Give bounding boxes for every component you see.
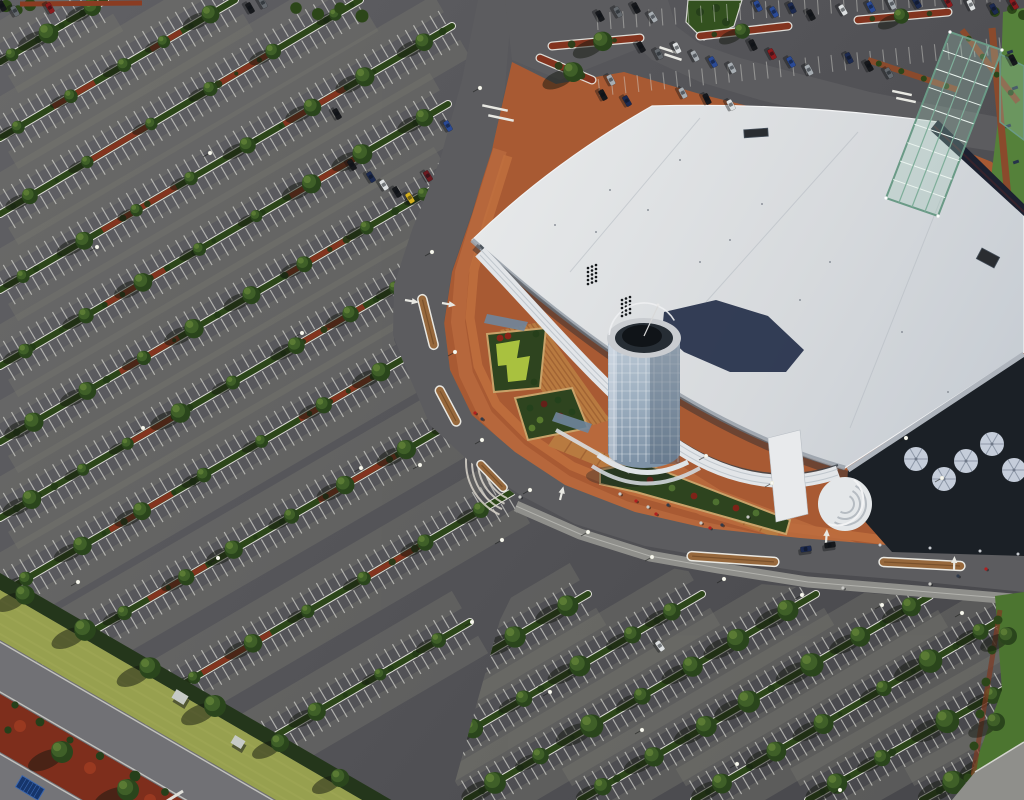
aerial-photo-viewport (0, 0, 1024, 800)
aerial-scene (0, 0, 1024, 800)
scene-canvas (0, 0, 1024, 800)
aerial-photograph (0, 0, 1024, 800)
